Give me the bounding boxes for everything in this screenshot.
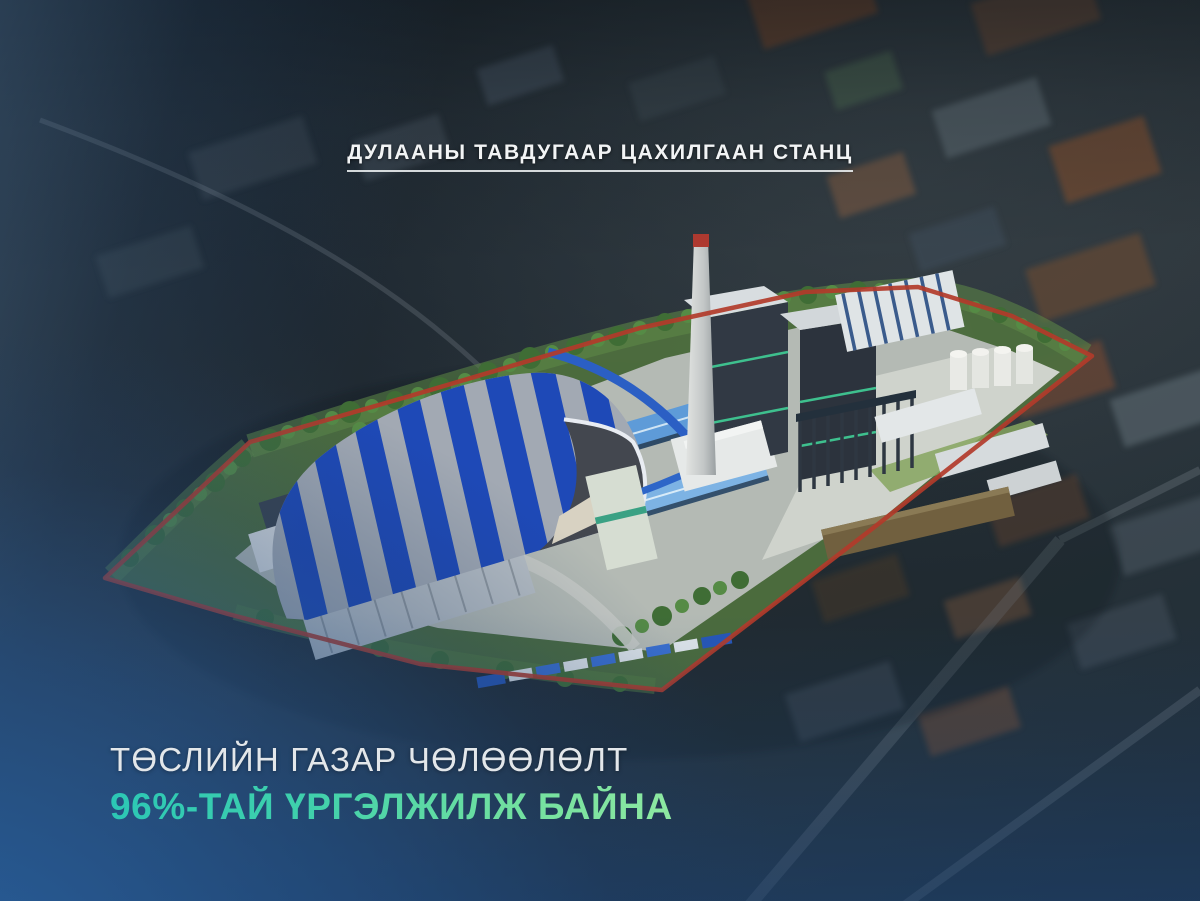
- caption-block: ТӨСЛИЙН ГАЗАР ЧӨЛӨӨЛӨЛТ 96%-ТАЙ ҮРГЭЛЖИЛ…: [110, 741, 673, 828]
- smokestack: [686, 234, 716, 475]
- header: ДУЛААНЫ ТАВДУГААР ЦАХИЛГААН СТАНЦ: [0, 141, 1200, 172]
- slide: ДУЛААНЫ ТАВДУГААР ЦАХИЛГААН СТАНЦ ТӨСЛИЙ…: [0, 0, 1200, 901]
- smokestack-red-tip: [693, 234, 709, 247]
- caption-line2-progress: 96%-ТАЙ ҮРГЭЛЖИЛЖ БАЙНА: [110, 786, 673, 828]
- page-title: ДУЛААНЫ ТАВДУГААР ЦАХИЛГААН СТАНЦ: [347, 141, 853, 172]
- caption-line1: ТӨСЛИЙН ГАЗАР ЧӨЛӨӨЛӨЛТ: [110, 741, 673, 779]
